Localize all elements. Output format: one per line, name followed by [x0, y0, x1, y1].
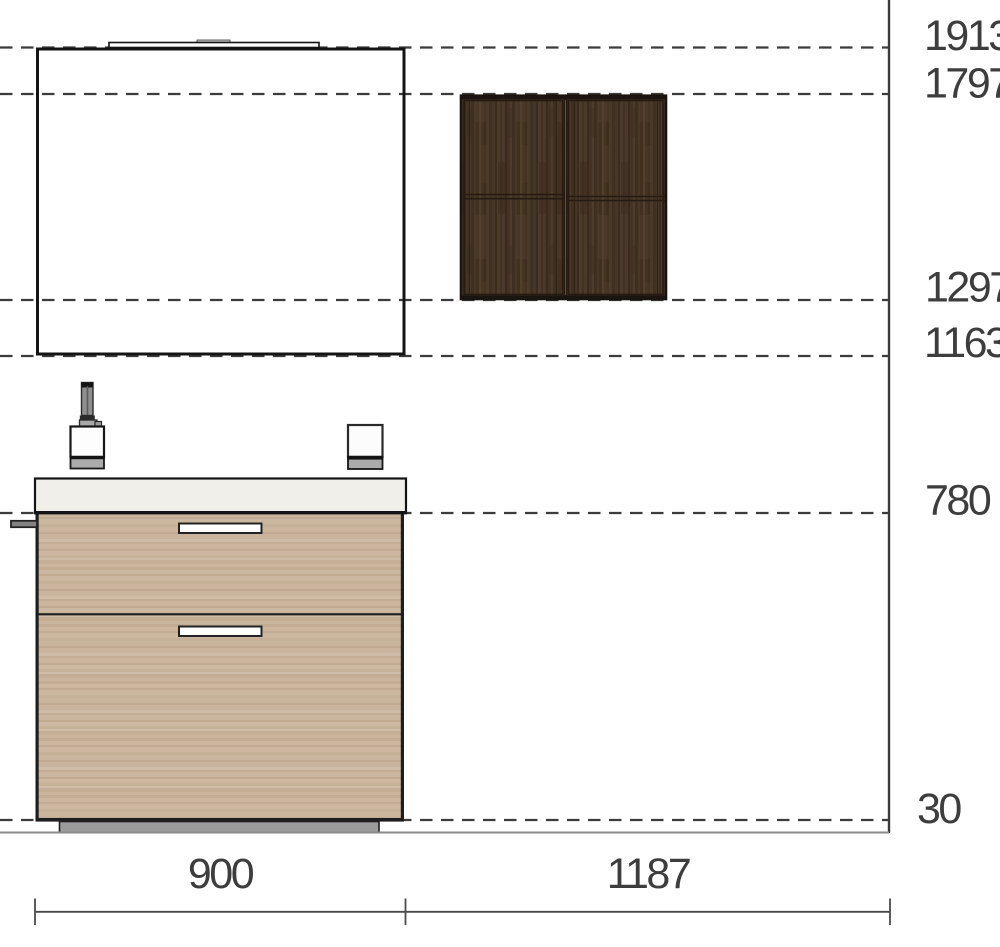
svg-text:1163: 1163	[924, 319, 1000, 367]
svg-text:1797: 1797	[924, 60, 1000, 108]
svg-text:1187: 1187	[607, 850, 690, 898]
svg-text:1297: 1297	[925, 264, 1000, 312]
svg-text:30: 30	[917, 785, 961, 833]
svg-text:900: 900	[188, 850, 254, 898]
svg-text:1913: 1913	[924, 12, 1000, 60]
svg-text:780: 780	[925, 477, 991, 525]
